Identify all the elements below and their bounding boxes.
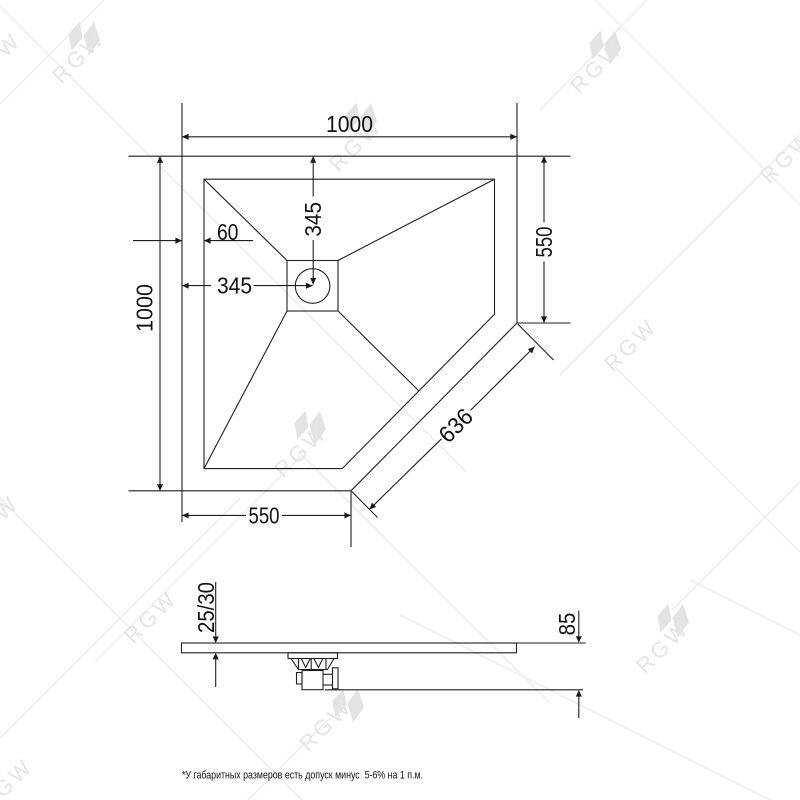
svg-text:1000: 1000 bbox=[326, 111, 373, 137]
svg-text:*У габаритных размеров есть до: *У габаритных размеров есть допуск минус… bbox=[182, 770, 423, 782]
svg-text:85: 85 bbox=[554, 613, 580, 636]
svg-text:550: 550 bbox=[249, 503, 280, 529]
svg-text:345: 345 bbox=[300, 202, 326, 237]
svg-text:1000: 1000 bbox=[132, 284, 158, 332]
svg-text:550: 550 bbox=[531, 227, 557, 258]
svg-text:345: 345 bbox=[217, 273, 252, 299]
svg-text:60: 60 bbox=[217, 219, 239, 245]
svg-text:25/30: 25/30 bbox=[193, 582, 219, 633]
